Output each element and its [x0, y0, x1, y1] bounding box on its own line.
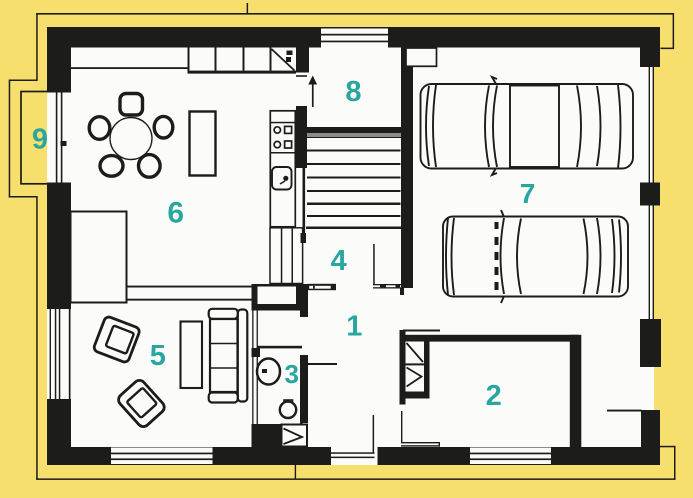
- svg-text:1: 1: [346, 311, 362, 343]
- svg-text:9: 9: [32, 124, 48, 156]
- svg-text:8: 8: [345, 76, 361, 108]
- svg-text:4: 4: [331, 245, 347, 277]
- svg-text:7: 7: [520, 178, 536, 209]
- svg-text:6: 6: [167, 196, 184, 229]
- svg-text:3: 3: [284, 359, 298, 389]
- svg-text:5: 5: [150, 340, 166, 372]
- svg-text:2: 2: [486, 380, 502, 412]
